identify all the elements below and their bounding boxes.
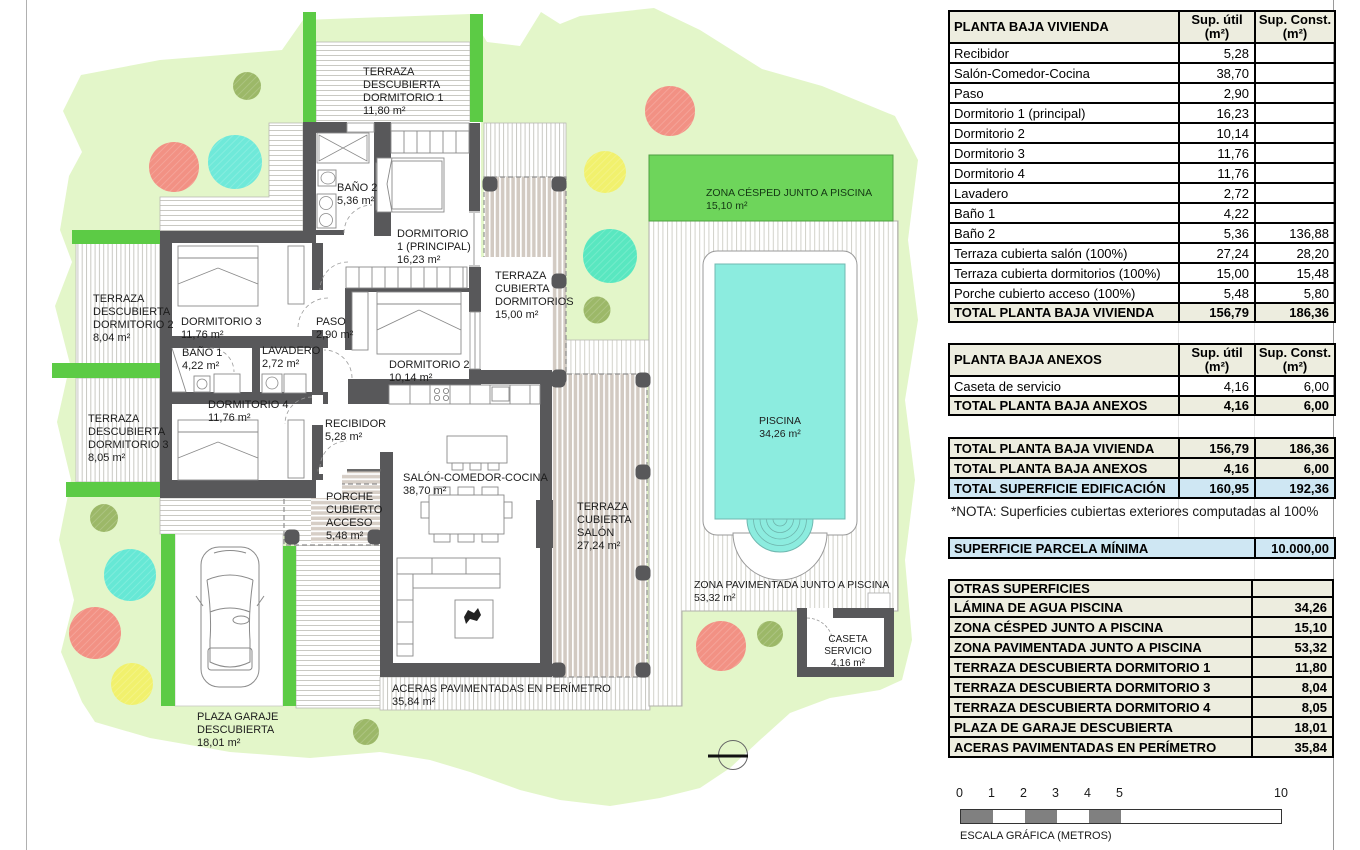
svg-text:LAVADERO: LAVADERO — [262, 345, 321, 357]
svg-text:38,70 m²: 38,70 m² — [403, 485, 447, 497]
svg-text:15,10 m²: 15,10 m² — [706, 200, 748, 212]
svg-text:2,72 m²: 2,72 m² — [262, 358, 300, 370]
svg-text:DORMITORIO: DORMITORIO — [397, 228, 469, 240]
svg-text:CUBIERTA: CUBIERTA — [577, 514, 632, 526]
svg-text:TERRAZA: TERRAZA — [88, 413, 140, 425]
svg-text:PISCINA: PISCINA — [759, 415, 801, 427]
svg-text:ACCESO: ACCESO — [326, 517, 373, 529]
svg-text:5,48 m²: 5,48 m² — [326, 530, 364, 542]
svg-text:PORCHE: PORCHE — [326, 491, 373, 503]
svg-text:SALÓN: SALÓN — [577, 526, 614, 539]
svg-text:DORMITORIOS: DORMITORIOS — [495, 296, 574, 308]
svg-text:ZONA PAVIMENTADA JUNTO A PISCI: ZONA PAVIMENTADA JUNTO A PISCINA — [694, 579, 889, 591]
svg-text:16,23 m²: 16,23 m² — [397, 254, 441, 266]
svg-text:35,84 m²: 35,84 m² — [392, 696, 436, 708]
svg-text:CUBIERTO: CUBIERTO — [326, 504, 383, 516]
svg-text:DESCUBIERTA: DESCUBIERTA — [197, 724, 275, 736]
svg-text:DORMITORIO 3: DORMITORIO 3 — [88, 439, 168, 451]
svg-text:DESCUBIERTA: DESCUBIERTA — [88, 426, 166, 438]
svg-text:27,24 m²: 27,24 m² — [577, 540, 621, 552]
svg-text:PLAZA GARAJE: PLAZA GARAJE — [197, 711, 278, 723]
svg-text:34,26 m²: 34,26 m² — [759, 428, 801, 440]
svg-text:4,16 m²: 4,16 m² — [831, 658, 866, 669]
svg-text:DORMITORIO 2: DORMITORIO 2 — [93, 319, 173, 331]
svg-text:TERRAZA: TERRAZA — [93, 293, 145, 305]
svg-text:8,05 m²: 8,05 m² — [88, 452, 126, 464]
svg-text:TERRAZA: TERRAZA — [577, 501, 629, 513]
svg-text:SERVICIO: SERVICIO — [824, 646, 872, 657]
svg-text:53,32 m²: 53,32 m² — [694, 592, 736, 604]
svg-text:2,90 m²: 2,90 m² — [316, 329, 354, 341]
svg-text:11,76 m²: 11,76 m² — [208, 412, 251, 424]
svg-text:CASETA: CASETA — [828, 634, 868, 645]
svg-text:10,14 m²: 10,14 m² — [389, 372, 433, 384]
svg-text:BAÑO 2: BAÑO 2 — [337, 181, 377, 194]
svg-text:CUBIERTA: CUBIERTA — [495, 283, 550, 295]
svg-text:18,01 m²: 18,01 m² — [197, 737, 241, 749]
svg-text:DORMITORIO 3: DORMITORIO 3 — [181, 316, 261, 328]
svg-text:5,28 m²: 5,28 m² — [325, 431, 363, 443]
svg-text:DORMITORIO 4: DORMITORIO 4 — [208, 399, 288, 411]
svg-text:PASO: PASO — [316, 316, 346, 328]
svg-text:ZONA CÉSPED JUNTO A PISCINA: ZONA CÉSPED JUNTO A PISCINA — [706, 186, 872, 199]
svg-text:SALÓN-COMEDOR-COCINA: SALÓN-COMEDOR-COCINA — [403, 471, 549, 484]
svg-text:DORMITORIO 1: DORMITORIO 1 — [363, 92, 443, 104]
svg-text:RECIBIDOR: RECIBIDOR — [325, 418, 386, 430]
svg-text:TERRAZA: TERRAZA — [363, 66, 415, 78]
svg-text:DESCUBIERTA: DESCUBIERTA — [363, 79, 441, 91]
svg-text:11,76 m²: 11,76 m² — [181, 329, 224, 341]
svg-text:ACERAS PAVIMENTADAS EN PERÍMET: ACERAS PAVIMENTADAS EN PERÍMETRO — [392, 682, 611, 695]
svg-text:5,36 m²: 5,36 m² — [337, 195, 375, 207]
svg-text:TERRAZA: TERRAZA — [495, 270, 547, 282]
svg-text:BAÑO 1: BAÑO 1 — [182, 346, 222, 359]
svg-text:DESCUBIERTA: DESCUBIERTA — [93, 306, 171, 318]
svg-text:4,22 m²: 4,22 m² — [182, 360, 220, 372]
svg-text:11,80 m²: 11,80 m² — [363, 105, 406, 117]
svg-text:1 (PRINCIPAL): 1 (PRINCIPAL) — [397, 241, 471, 253]
svg-text:8,04 m²: 8,04 m² — [93, 332, 131, 344]
svg-text:15,00 m²: 15,00 m² — [495, 309, 539, 321]
svg-text:DORMITORIO 2: DORMITORIO 2 — [389, 359, 469, 371]
